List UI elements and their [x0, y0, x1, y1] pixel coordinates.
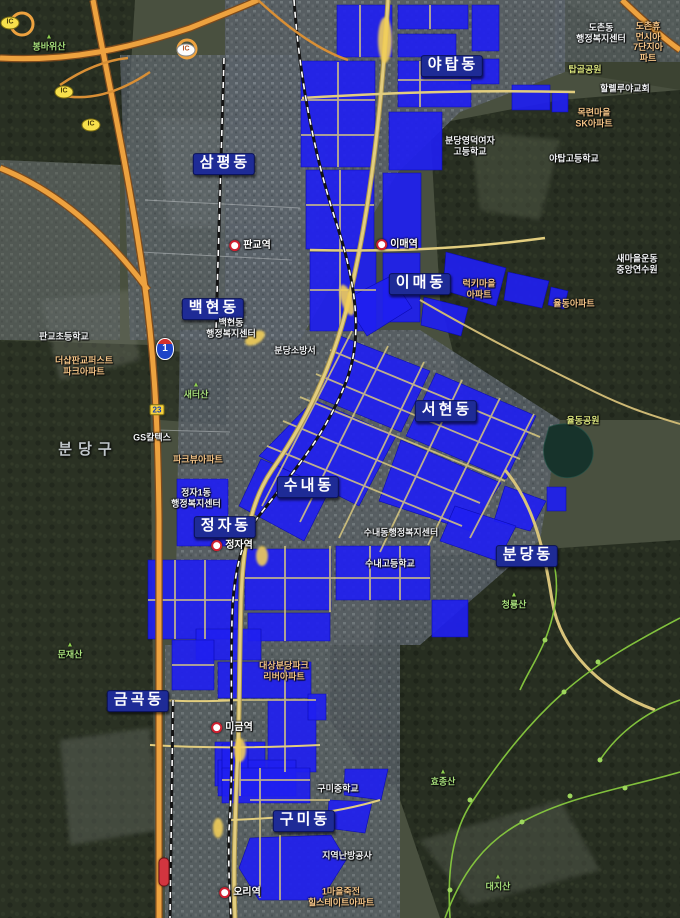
- satellite-map-image[interactable]: 야탑동삼평동이매동백현동서현동수내동정자동분당동금곡동구미동분당구판교역이매역정…: [0, 0, 680, 918]
- map-canvas: [0, 0, 680, 918]
